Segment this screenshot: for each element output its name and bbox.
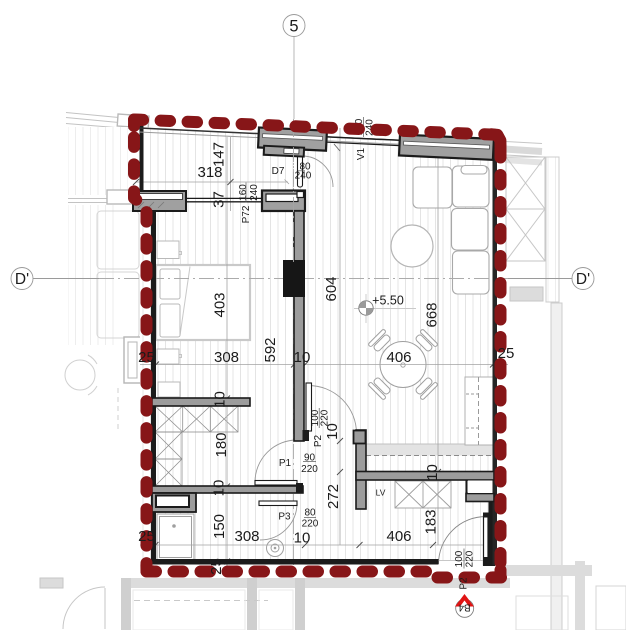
- svg-text:LV: LV: [376, 488, 386, 498]
- svg-text:160: 160: [238, 184, 249, 201]
- svg-text:183: 183: [423, 509, 440, 534]
- svg-text:P72: P72: [241, 205, 252, 223]
- svg-text:10: 10: [211, 480, 228, 497]
- svg-text:25: 25: [138, 349, 155, 366]
- svg-text:403: 403: [212, 292, 229, 317]
- svg-text:220: 220: [301, 464, 318, 475]
- svg-text:37: 37: [211, 191, 228, 208]
- svg-text:220: 220: [320, 409, 331, 426]
- svg-text:80: 80: [304, 508, 316, 519]
- svg-text:668: 668: [424, 302, 441, 327]
- svg-text:D': D': [15, 271, 29, 288]
- svg-text:P2: P2: [313, 434, 324, 447]
- svg-text:272: 272: [325, 484, 342, 509]
- svg-text:240: 240: [295, 171, 312, 182]
- svg-text:P1: P1: [279, 458, 292, 469]
- svg-text:10: 10: [294, 349, 311, 366]
- svg-text:D7: D7: [272, 166, 285, 177]
- svg-text:25: 25: [138, 528, 155, 545]
- svg-text:147: 147: [211, 142, 228, 167]
- svg-text:25: 25: [208, 558, 225, 575]
- svg-text:604: 604: [323, 276, 340, 301]
- svg-text:406: 406: [386, 528, 411, 545]
- svg-text:592: 592: [262, 337, 279, 362]
- svg-text:240: 240: [249, 184, 260, 201]
- svg-text:10: 10: [212, 391, 229, 408]
- svg-text:308: 308: [234, 528, 259, 545]
- svg-text:+5.50: +5.50: [372, 294, 404, 308]
- svg-text:5: 5: [289, 18, 298, 36]
- svg-text:180: 180: [213, 432, 230, 457]
- svg-text:10: 10: [294, 530, 311, 547]
- svg-text:V1: V1: [356, 147, 367, 160]
- svg-text:25: 25: [498, 345, 515, 362]
- svg-text:P2: P2: [459, 577, 470, 590]
- svg-text:B4: B4: [458, 602, 471, 613]
- svg-text:D': D': [576, 271, 590, 288]
- svg-text:220: 220: [465, 550, 476, 567]
- svg-text:150: 150: [211, 514, 228, 539]
- svg-text:220: 220: [302, 519, 319, 530]
- svg-text:100: 100: [454, 550, 465, 567]
- svg-text:308: 308: [214, 349, 239, 366]
- svg-text:P3: P3: [278, 512, 291, 523]
- svg-text:10: 10: [424, 464, 441, 481]
- svg-text:406: 406: [386, 349, 411, 366]
